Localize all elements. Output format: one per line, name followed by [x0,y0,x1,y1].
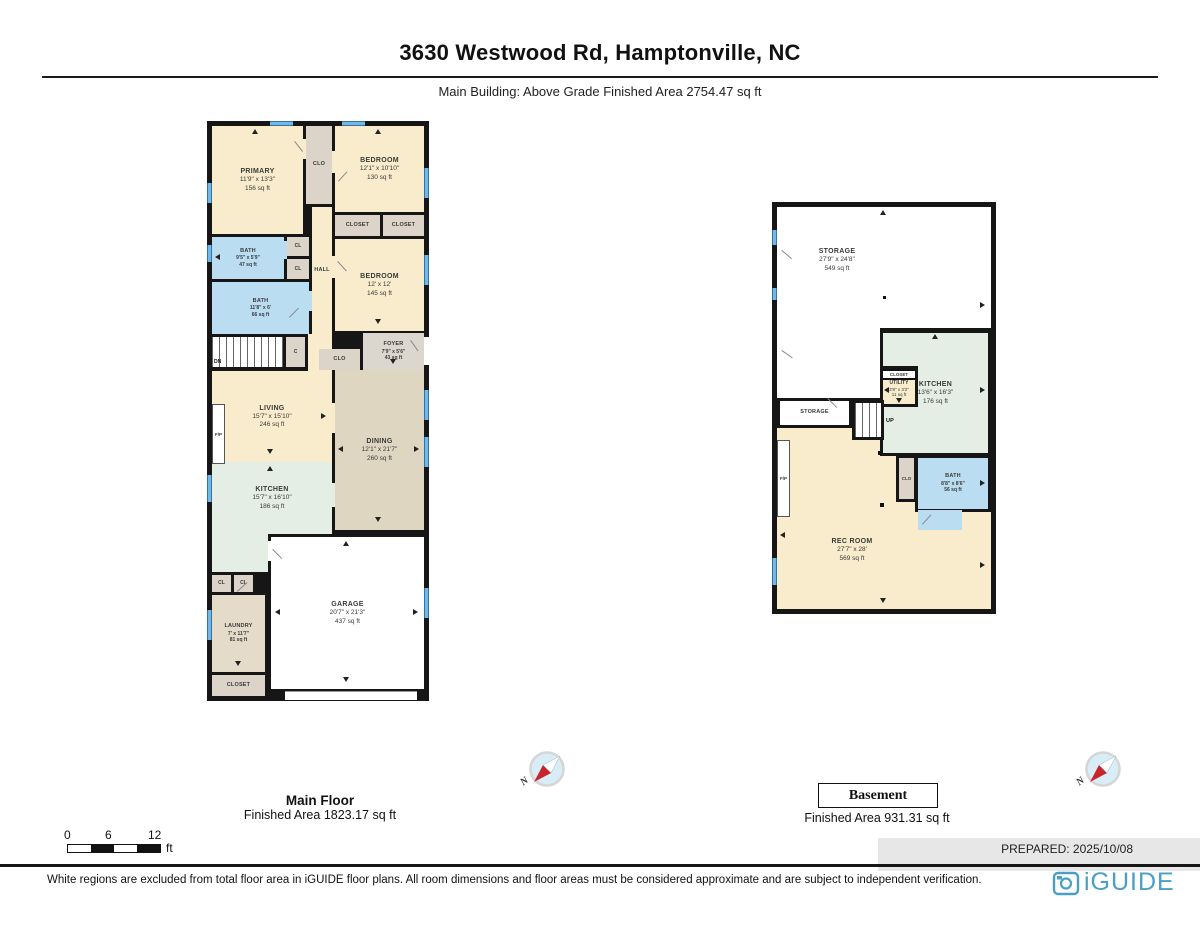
dimension-arrow [267,466,273,471]
dimension-arrow [780,532,785,538]
window [424,168,429,198]
compass-basement: N [1084,750,1124,790]
header-divider [42,76,1158,78]
room-cl-c: CL [212,575,231,592]
room-closet-top: CLO [306,126,332,204]
utility-closet-band: CLOSET [883,369,915,380]
front-door-opening [424,337,429,365]
room-storage-small: STORAGE [777,398,852,428]
room-cl-a: CL [287,237,309,256]
dimension-arrow [343,677,349,682]
dimension-arrow [414,446,419,452]
window [207,475,212,502]
stairs-up [852,400,884,440]
room-clo-2: CLO [319,349,360,370]
scale-end: 12 [148,828,161,842]
room-closet-left: CLOSET [335,215,380,236]
stairs-up-label: UP [886,418,894,424]
door-opening [284,241,287,259]
room-bedroom-1: BEDROOM 12'1" x 10'10" 130 sq ft [335,126,424,212]
room-basement-clo: CLO [896,455,917,502]
window [772,558,777,585]
prepared-date: PREPARED: 2025/10/08 [900,842,1133,856]
room-kitchen: KITCHEN 15'7" x 16'10" 186 sq ft [212,462,332,534]
scale-bar: 0 6 12 ft [64,828,224,856]
compass-icon [1084,750,1122,788]
dimension-arrow [980,480,985,486]
main-floor-caption: Main Floor Finished Area 1823.17 sq ft [207,793,433,822]
dimension-arrow [980,387,985,393]
window [772,288,777,300]
window [772,230,777,245]
door-opening [303,139,306,159]
dimension-arrow [413,609,418,615]
compass-icon [528,750,566,788]
dimension-arrow [235,661,241,666]
rec-room-label: REC ROOM 27'7" x 28' 569 sq ft [797,537,907,563]
dimension-arrow [321,413,326,419]
dimension-arrow [980,302,985,308]
dimension-arrow [980,562,985,568]
footer-divider [0,864,1200,867]
dimension-arrow [880,598,886,603]
window [207,610,212,640]
window [424,390,429,420]
door-opening [332,256,335,278]
main-floor-area: Finished Area 1823.17 sq ft [207,808,433,822]
room-bath-1: BATH 9'5" x 5'9" 47 sq ft [212,237,284,279]
window [342,121,365,126]
window [270,121,293,126]
iguide-logo-text: iGUIDE [1084,868,1175,897]
scale-segments [67,844,161,853]
window [207,183,212,203]
dimension-arrow [880,210,886,215]
basement-area: Finished Area 931.31 sq ft [765,811,989,825]
floor-plan-page: { "page": { "title": "3630 Westwood Rd, … [0,0,1200,927]
basement-fireplace: F/P [777,440,790,517]
room-primary: PRIMARY 11'9" x 13'3" 156 sq ft [212,126,303,234]
basement-title-box: Basement [818,783,938,808]
room-closet-bottom: CLOSET [212,675,265,696]
door-opening [268,541,271,561]
dimension-arrow [267,449,273,454]
fireplace: F/P [212,404,225,464]
room-garage: GARAGE 20'7" x 21'3" 437 sq ft [271,537,424,689]
dimension-arrow [375,517,381,522]
room-bedroom-2: BEDROOM 12' x 12' 145 sq ft [335,239,424,331]
garage-door [285,691,417,700]
support-post [880,503,884,507]
room-bath-2: BATH 11'8" x 6' 66 sq ft [212,282,309,334]
page-title: 3630 Westwood Rd, Hamptonville, NC [0,40,1200,66]
basement-plan: REC ROOM 27'7" x 28' 569 sq ft STORAGE 2… [772,202,996,614]
page-subtitle: Main Building: Above Grade Finished Area… [0,84,1200,99]
room-cl-b: CL [287,259,309,279]
dimension-arrow [375,319,381,324]
dimension-arrow [275,609,280,615]
door-opening [332,151,335,173]
basement-title: Basement [849,788,907,803]
cased-opening [332,483,335,507]
stairs-dn-label: DN [214,359,221,365]
room-dining: DINING 12'1" x 21'7" 260 sq ft [335,370,424,530]
window [424,588,429,618]
window [424,437,429,467]
room-closet-right: CLOSET [383,215,424,236]
dimension-arrow [390,359,396,364]
dimension-arrow [884,387,889,393]
window [424,255,429,285]
main-floor-plan: PRIMARY 11'9" x 13'3" 156 sq ft CLO BEDR… [207,121,429,701]
iguide-logo-icon [1052,870,1080,896]
room-hall: HALL [312,207,332,334]
scale-mid: 6 [105,828,112,842]
cased-opening [332,403,335,433]
marker-dot [883,296,886,299]
door-opening [309,291,312,311]
storage-extension [777,328,880,398]
stairs-down: DN [212,337,283,367]
dimension-arrow [932,334,938,339]
dimension-arrow [338,446,343,452]
main-floor-title: Main Floor [207,793,433,808]
scale-unit: ft [166,841,173,855]
iguide-logo: iGUIDE [1052,868,1175,897]
room-foyer: FOYER 7'9" x 5'6" 43 sq ft [363,333,424,370]
storage-label: STORAGE 27'9" x 24'8" 549 sq ft [782,247,892,273]
dimension-arrow [252,129,258,134]
room-c-closet: C [286,337,305,367]
dimension-arrow [896,398,902,403]
dimension-arrow [343,541,349,546]
scale-start: 0 [64,828,71,842]
kitchen-extension [212,534,268,572]
compass-main: N [528,750,568,790]
disclaimer-text: White regions are excluded from total fl… [47,874,1047,886]
dimension-arrow [375,129,381,134]
dimension-arrow [215,254,220,260]
support-post [878,451,882,455]
window [207,245,212,262]
